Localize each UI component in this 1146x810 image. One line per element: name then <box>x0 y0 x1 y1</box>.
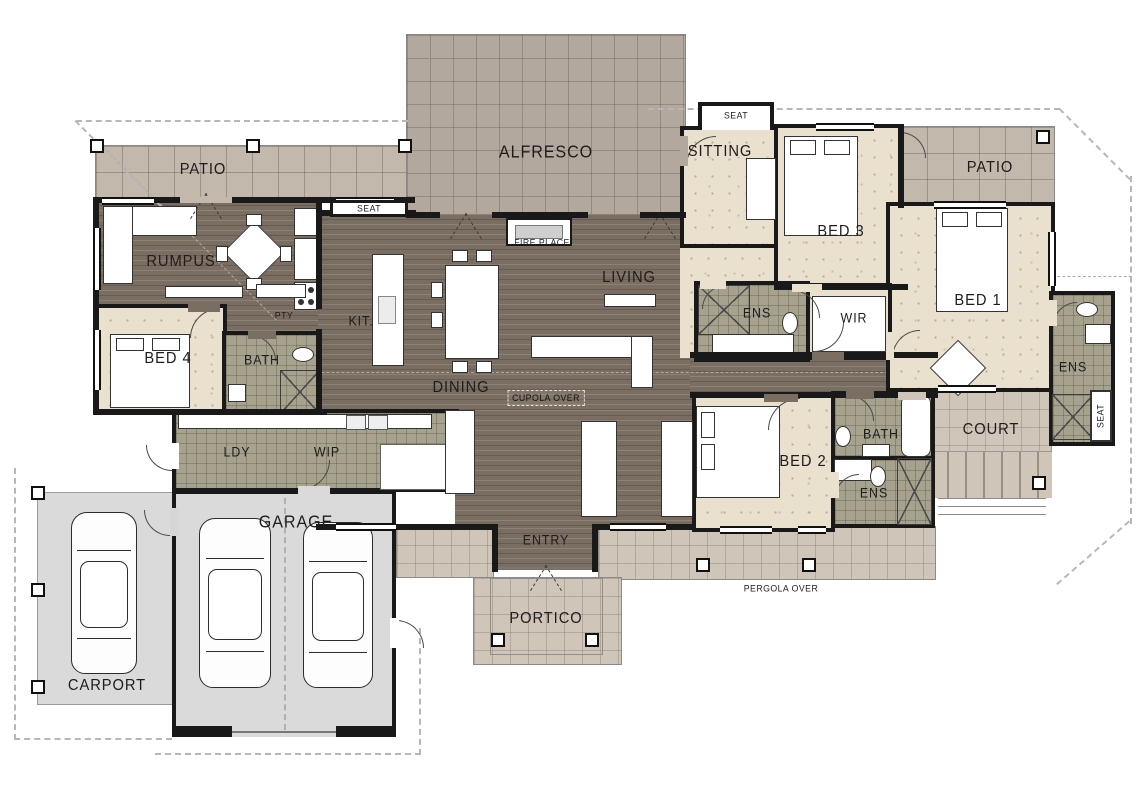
toilet <box>870 466 886 487</box>
sofa <box>631 336 653 388</box>
label-court: COURT <box>963 421 1020 439</box>
chair <box>476 361 492 373</box>
label-seat-kitchen: SEAT <box>357 204 381 215</box>
post <box>90 139 104 153</box>
pillow <box>824 140 850 155</box>
label-bed-2: BED 2 <box>779 453 826 471</box>
wall <box>316 329 322 415</box>
eave-line <box>14 468 16 740</box>
eave-line <box>1059 108 1131 180</box>
floor-veranda-left <box>396 526 494 578</box>
post <box>491 633 505 647</box>
door-opening <box>170 508 179 536</box>
chair <box>476 250 492 262</box>
post <box>1032 476 1046 490</box>
pillow <box>116 338 144 351</box>
post <box>585 633 599 647</box>
chair <box>431 282 443 298</box>
door-swing <box>396 620 424 648</box>
door-opening <box>846 391 874 399</box>
post <box>802 558 816 572</box>
post <box>31 680 45 694</box>
window <box>798 526 826 534</box>
dining-table <box>445 265 499 359</box>
post <box>398 139 412 153</box>
pillow <box>976 212 1002 227</box>
door-swing <box>146 445 172 471</box>
toilet <box>292 347 314 362</box>
post <box>1036 130 1050 144</box>
label-fire-place: FIRE PLACE <box>514 238 570 249</box>
wall <box>640 212 686 218</box>
label-bed-4: BED 4 <box>144 350 191 368</box>
garage-bay-divider <box>284 498 286 730</box>
label-kitchen: KIT. <box>348 314 373 329</box>
door-opening <box>831 472 839 498</box>
label-patio-left: PATIO <box>180 161 227 179</box>
label-laundry: LDY <box>224 445 251 460</box>
wall <box>172 726 232 737</box>
toilet <box>1076 302 1098 317</box>
vanity <box>1085 324 1111 344</box>
window <box>934 201 1006 209</box>
eave-line <box>76 120 408 122</box>
label-carport: CARPORT <box>68 677 146 695</box>
pantry-shelf <box>256 284 306 298</box>
vanity <box>862 444 890 457</box>
label-rumpus: RUMPUS <box>146 253 215 271</box>
post <box>696 558 710 572</box>
label-living: LIVING <box>602 269 656 287</box>
post <box>31 486 45 500</box>
vanity <box>228 384 246 402</box>
label-ens-mid: ENS <box>743 306 771 321</box>
door-opening <box>248 331 276 339</box>
dryer <box>368 415 388 430</box>
tv-unit <box>165 286 243 298</box>
window <box>1048 232 1056 286</box>
couch <box>746 158 776 220</box>
label-bath-right: BATH <box>863 427 899 442</box>
label-portico: PORTICO <box>509 610 582 628</box>
tv-unit <box>604 294 656 307</box>
post <box>31 583 45 597</box>
floor-court-deck <box>930 452 1052 498</box>
chair <box>246 214 262 226</box>
pillow <box>790 140 816 155</box>
label-dining: DINING <box>432 379 489 397</box>
door-opening <box>700 281 726 289</box>
window <box>720 526 772 534</box>
label-bath-left: BATH <box>244 353 280 368</box>
floor-plan: PATIO ALFRESCO SITTING SEAT BED 3 PATIO … <box>0 0 1146 810</box>
label-ens-bed1: ENS <box>1059 360 1087 375</box>
label-bed-3: BED 3 <box>817 223 864 241</box>
fridge <box>294 208 318 236</box>
window <box>816 123 874 131</box>
door-opening <box>792 284 822 292</box>
wall <box>492 524 498 572</box>
label-seat-court: SEAT <box>1096 404 1107 428</box>
label-garage: GARAGE <box>259 512 333 533</box>
kitchen-bench <box>294 238 318 280</box>
door-opening <box>298 486 330 495</box>
pillow <box>701 412 715 438</box>
door-opening <box>1049 300 1057 326</box>
label-alfresco: ALFRESCO <box>499 142 593 163</box>
ridge-line <box>1052 276 1132 277</box>
label-patio-right: PATIO <box>967 159 1014 177</box>
chair <box>431 312 443 328</box>
toilet <box>835 426 851 447</box>
label-entry: ENTRY <box>523 533 569 548</box>
shower <box>1052 394 1094 440</box>
floor-veranda-right <box>598 526 936 580</box>
shower <box>897 458 932 525</box>
car-garage-1 <box>199 518 271 688</box>
wall <box>406 212 440 218</box>
label-pantry: PTY <box>275 311 293 322</box>
door-opening <box>170 443 179 469</box>
bath-tub <box>901 395 931 457</box>
label-cupola-over: CUPOLA OVER <box>508 390 585 406</box>
pillow <box>701 444 715 470</box>
window <box>102 197 154 205</box>
eave-line <box>155 753 421 755</box>
label-seat-sitting: SEAT <box>724 111 748 122</box>
wip-shelves <box>380 444 455 490</box>
window <box>93 330 101 390</box>
label-wir: WIR <box>841 311 868 326</box>
car-carport <box>71 512 137 674</box>
door-opening <box>886 332 894 360</box>
floor-patio-left <box>95 145 410 200</box>
sink <box>378 296 396 324</box>
chair <box>216 246 228 262</box>
chair <box>452 361 468 373</box>
shower <box>280 370 320 414</box>
floor-alfresco <box>406 34 686 220</box>
label-bed-1: BED 1 <box>954 292 1001 310</box>
washer <box>346 415 366 430</box>
car-garage-2 <box>303 522 373 688</box>
window <box>610 523 666 531</box>
wall <box>898 124 904 208</box>
window <box>336 523 396 531</box>
pillow <box>942 212 968 227</box>
eave-line <box>1130 176 1132 524</box>
label-sitting: SITTING <box>688 143 753 161</box>
court-steps <box>938 498 1046 522</box>
door-opening <box>180 197 232 203</box>
label-wip: WIP <box>314 445 340 460</box>
door-opening <box>764 394 798 402</box>
chair <box>280 246 292 262</box>
window <box>93 228 101 290</box>
sofa <box>103 206 133 284</box>
door-opening <box>898 392 926 400</box>
study-desk <box>445 410 475 494</box>
eave-line <box>14 738 172 740</box>
cabinet <box>581 421 617 517</box>
chair <box>452 250 468 262</box>
cabinet <box>661 421 693 517</box>
door-opening <box>390 618 399 648</box>
wall <box>93 409 327 415</box>
label-pergola-over: PERGOLA OVER <box>744 584 819 595</box>
door-opening <box>188 304 220 312</box>
post <box>246 139 260 153</box>
window <box>938 385 996 393</box>
eave-line <box>1056 520 1130 584</box>
wall <box>336 726 396 737</box>
laundry-bench <box>178 414 432 429</box>
door-opening <box>812 352 844 360</box>
label-ens-bed2: ENS <box>860 486 888 501</box>
wall <box>592 524 598 572</box>
